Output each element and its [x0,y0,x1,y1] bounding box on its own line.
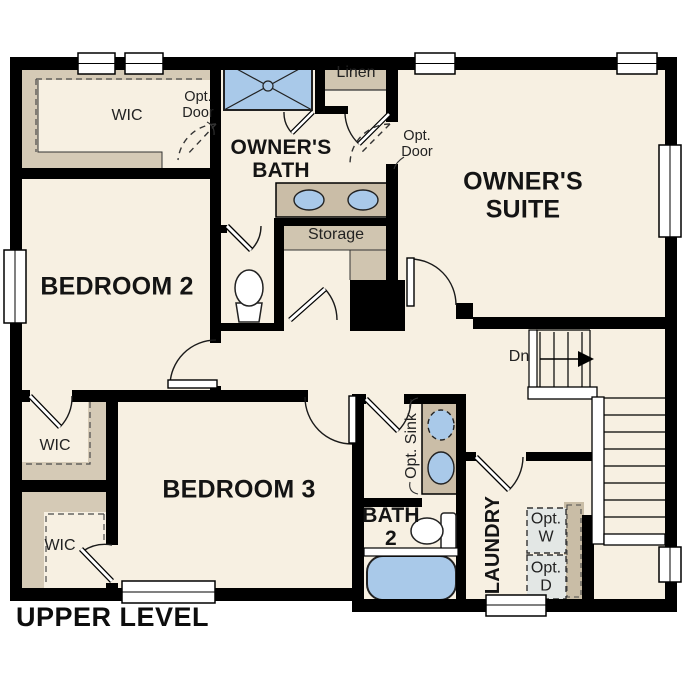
bathtub [367,556,456,600]
room-label-laundry: LAUNDRY [482,496,504,594]
room-label-bath-2: BATH 2 [356,504,426,550]
window [486,595,546,616]
annotation-opt-sink: Opt. Sink [403,413,421,479]
stair-landing [528,387,597,399]
closet-label-wic-1: WIC [39,437,70,455]
plan-title: UPPER LEVEL [16,602,209,633]
closet-label-linen: Linen [336,64,375,82]
window [78,53,115,74]
window [415,53,455,74]
annotation-opt-door-1: Opt. Door [176,90,220,122]
closet-label-wic-2: WIC [44,537,75,555]
window [617,53,657,74]
floor-plan-drawing [0,0,687,687]
annotation-opt-door-2: Opt. Door [395,129,439,161]
annotation-opt-washer: Opt. W [524,510,568,545]
window [125,53,163,74]
stair-railing [529,330,537,390]
room-label-owners-bath: OWNER'S BATH [221,136,341,182]
closet-label-storage: Storage [308,226,364,244]
window [122,581,215,603]
annotation-opt-dryer: Opt. D [524,559,568,594]
window [659,145,681,237]
room-label-bedroom-2: BEDROOM 2 [7,273,227,301]
floor-plan: WIC Opt. Door OWNER'S BATH Linen Opt. Do… [0,0,687,687]
owner-toilet [235,270,263,322]
closet-label-owner-wic: WIC [111,107,142,125]
room-label-owners-suite: OWNER'S SUITE [443,169,603,224]
room-label-bedroom-3: BEDROOM 3 [129,476,349,504]
window [659,547,681,582]
annotation-stairs-down: Dn [509,348,529,366]
